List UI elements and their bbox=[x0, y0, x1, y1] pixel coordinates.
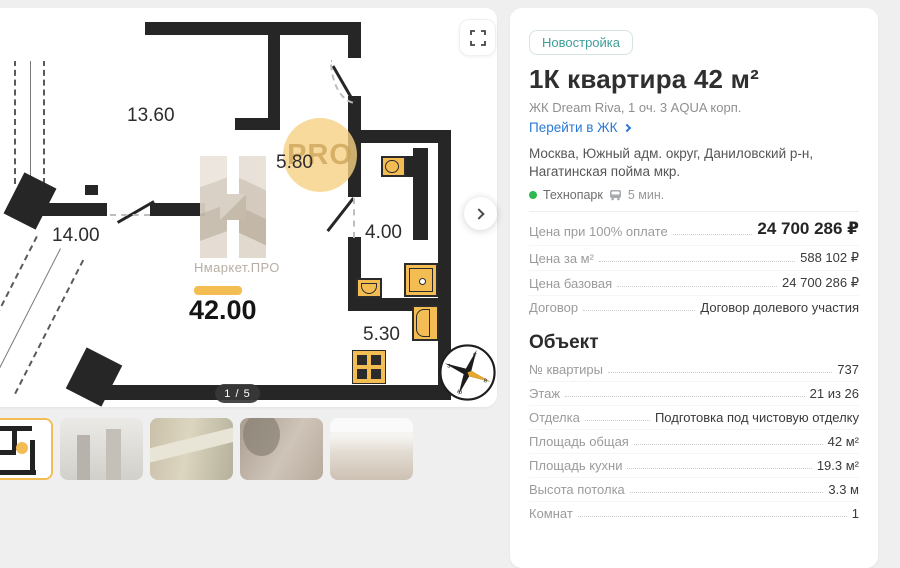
dotted-leader bbox=[617, 286, 777, 287]
washer-icon bbox=[352, 350, 386, 384]
row-label: Площадь кухни bbox=[529, 458, 622, 473]
aerial-view-thumb[interactable] bbox=[150, 418, 233, 480]
mini-floor-plan bbox=[0, 420, 51, 478]
wall-segment bbox=[348, 130, 447, 143]
floor-plan: Нмаркет.ПРО PRO 13.60 14.00 5.80 4.00 5.… bbox=[0, 8, 497, 407]
object-row: Площадь кухни19.3 м² bbox=[529, 454, 859, 478]
row-label: Этаж bbox=[529, 386, 560, 401]
next-photo-button[interactable] bbox=[464, 197, 497, 230]
wall-corner bbox=[4, 172, 57, 229]
thumbnail-photo bbox=[60, 418, 143, 480]
total-area-label: 42.00 bbox=[189, 295, 257, 326]
object-row: Высота потолка3.3 м bbox=[529, 478, 859, 502]
exterior-towers-thumb[interactable] bbox=[60, 418, 143, 480]
metro-station: Технопарк bbox=[543, 188, 603, 202]
room-area-living: 13.60 bbox=[127, 105, 175, 127]
door-arc bbox=[110, 214, 150, 216]
room-area-hall: 5.80 bbox=[276, 152, 313, 174]
metro-row: Технопарк 5 мин. bbox=[529, 188, 859, 202]
row-label: Договор bbox=[529, 300, 578, 315]
dotted-leader bbox=[583, 310, 695, 311]
address-text: Москва, Южный адм. округ, Даниловский р-… bbox=[529, 145, 859, 181]
object-row: № квартиры737 bbox=[529, 358, 859, 382]
row-value: 24 700 286 ₽ bbox=[757, 219, 859, 239]
dotted-leader bbox=[627, 468, 811, 469]
floor-plan-thumb[interactable] bbox=[0, 418, 53, 480]
thumbnail-photo bbox=[240, 418, 323, 480]
price-row: ДоговорДоговор долевого участия bbox=[529, 296, 859, 319]
row-label: Высота потолка bbox=[529, 482, 625, 497]
dotted-leader bbox=[673, 234, 753, 235]
metro-line-dot bbox=[529, 191, 537, 199]
row-value: Договор долевого участия bbox=[700, 300, 859, 315]
dotted-leader bbox=[608, 372, 832, 373]
row-value: 588 102 ₽ bbox=[800, 250, 859, 266]
wall-segment bbox=[235, 118, 280, 130]
page-indicator: 1 / 5 bbox=[215, 384, 260, 403]
dotted-leader bbox=[630, 492, 824, 493]
door-arc bbox=[353, 198, 355, 238]
toilet-icon bbox=[381, 156, 406, 177]
nmarket-logo-watermark bbox=[200, 156, 266, 258]
wall-duct bbox=[406, 156, 418, 177]
row-value: 3.3 м bbox=[828, 482, 859, 497]
go-to-complex-link[interactable]: Перейти в ЖК bbox=[529, 120, 630, 135]
row-value: 1 bbox=[852, 506, 859, 521]
nmarket-watermark-text: Нмаркет.ПРО bbox=[194, 260, 280, 275]
row-label: Цена за м² bbox=[529, 251, 594, 266]
price-row: Цена за м²588 102 ₽ bbox=[529, 246, 859, 271]
chevron-right-icon bbox=[622, 123, 630, 131]
thumbnail-photo bbox=[150, 418, 233, 480]
price-row: Цена базовая24 700 286 ₽ bbox=[529, 271, 859, 296]
bus-icon bbox=[609, 189, 622, 201]
wall-segment bbox=[150, 203, 205, 216]
dotted-leader bbox=[599, 261, 795, 262]
balcony-window-line bbox=[14, 60, 16, 184]
row-value: 42 м² bbox=[828, 434, 859, 449]
object-row: ОтделкаПодготовка под чистовую отделку bbox=[529, 406, 859, 430]
wall-segment bbox=[348, 22, 361, 58]
wall-segment bbox=[42, 203, 107, 216]
room-area-kitchen: 14.00 bbox=[52, 225, 100, 247]
row-value: 24 700 286 ₽ bbox=[782, 275, 859, 291]
status-badge: Новостройка bbox=[529, 30, 633, 55]
dotted-leader bbox=[634, 444, 823, 445]
object-row: Этаж21 из 26 bbox=[529, 382, 859, 406]
complex-subtitle: ЖК Dream Riva, 1 оч. 3 AQUA корп. bbox=[529, 100, 859, 115]
bathtub-icon bbox=[412, 305, 439, 341]
row-label: Площадь общая bbox=[529, 434, 629, 449]
listing-details-card: Новостройка 1К квартира 42 м² ЖК Dream R… bbox=[510, 8, 878, 568]
balcony-window-diagonal bbox=[0, 236, 84, 394]
dotted-leader bbox=[565, 396, 805, 397]
compass-icon: с в ю з bbox=[438, 343, 497, 402]
balcony-window-line bbox=[30, 60, 31, 184]
fullscreen-button[interactable] bbox=[459, 19, 496, 56]
door-arc bbox=[330, 60, 356, 104]
balcony-window-line bbox=[43, 60, 45, 184]
total-area-underline bbox=[194, 286, 242, 295]
row-label: Цена базовая bbox=[529, 276, 612, 291]
wall-segment bbox=[268, 35, 280, 120]
floor-plan-card: Нмаркет.ПРО PRO 13.60 14.00 5.80 4.00 5.… bbox=[0, 8, 497, 407]
room-area-bath: 4.00 bbox=[365, 222, 402, 244]
shower-icon bbox=[404, 263, 438, 297]
object-section-heading: Объект bbox=[529, 332, 859, 354]
object-rows: № квартиры737Этаж21 из 26ОтделкаПодготов… bbox=[529, 358, 859, 525]
room-area-laundry: 5.30 bbox=[363, 324, 400, 346]
thumbnail-photo bbox=[330, 418, 413, 480]
price-rows: Цена при 100% оплате24 700 286 ₽Цена за … bbox=[529, 212, 859, 319]
row-label: № квартиры bbox=[529, 362, 603, 377]
sink-icon bbox=[356, 278, 382, 298]
interior-living-thumb[interactable] bbox=[240, 418, 323, 480]
interior-kitchen-thumb[interactable] bbox=[330, 418, 413, 480]
page-title: 1К квартира 42 м² bbox=[529, 64, 859, 95]
row-label: Комнат bbox=[529, 506, 573, 521]
row-value: 21 из 26 bbox=[810, 386, 859, 401]
wall-segment bbox=[85, 185, 98, 195]
fullscreen-icon bbox=[470, 30, 486, 46]
object-row: Площадь общая42 м² bbox=[529, 430, 859, 454]
row-value: Подготовка под чистовую отделку bbox=[655, 410, 859, 425]
logo-cover-box bbox=[0, 14, 143, 61]
price-row: Цена при 100% оплате24 700 286 ₽ bbox=[529, 212, 859, 246]
photo-thumbnails bbox=[0, 418, 510, 480]
row-value: 737 bbox=[837, 362, 859, 377]
door-leaf bbox=[326, 197, 354, 232]
object-row: Комнат1 bbox=[529, 502, 859, 525]
row-label: Цена при 100% оплате bbox=[529, 224, 668, 239]
wall-segment bbox=[95, 385, 450, 400]
metro-walk-time: 5 мин. bbox=[628, 188, 664, 202]
row-label: Отделка bbox=[529, 410, 580, 425]
row-value: 19.3 м² bbox=[817, 458, 859, 473]
chevron-right-icon bbox=[473, 208, 484, 219]
dotted-leader bbox=[585, 420, 650, 421]
wall-segment bbox=[145, 22, 358, 35]
dotted-leader bbox=[578, 516, 847, 517]
